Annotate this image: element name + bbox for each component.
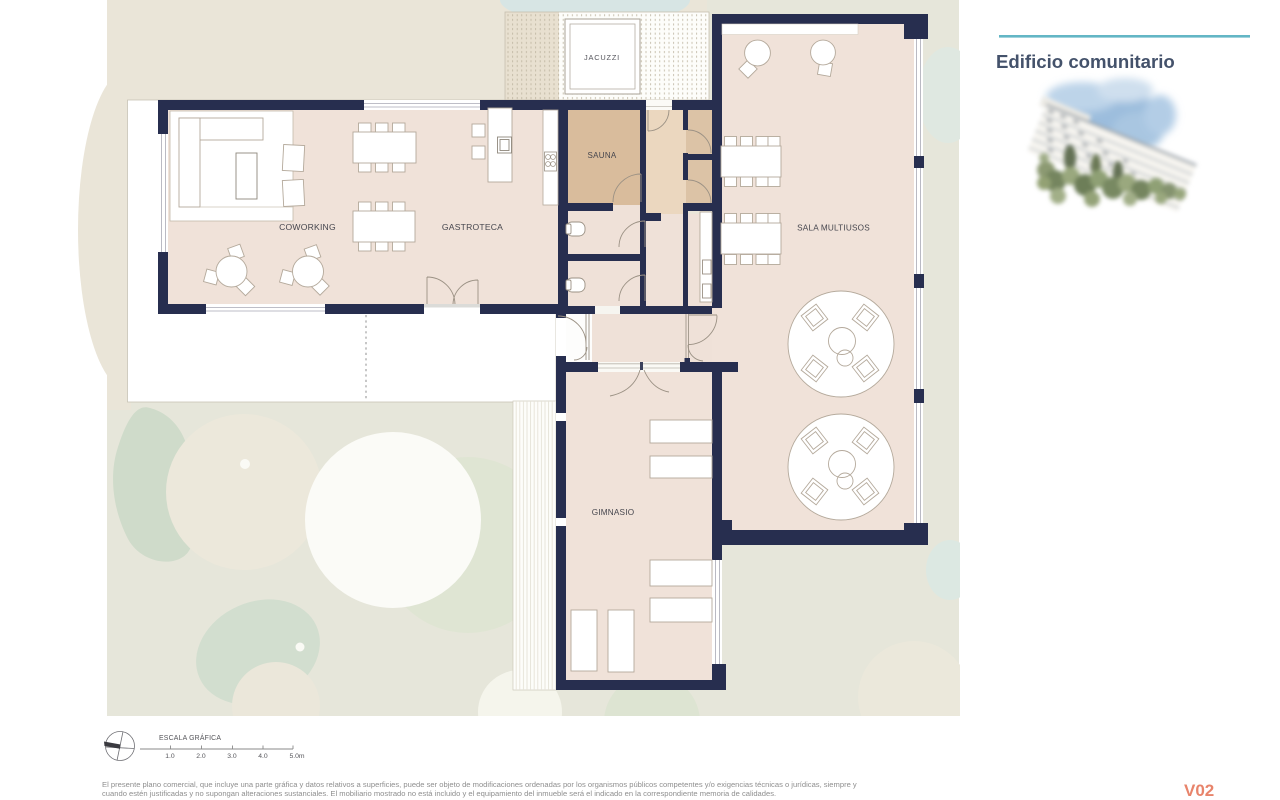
svg-text:4.0: 4.0	[258, 753, 268, 760]
svg-text:COWORKING: COWORKING	[279, 222, 336, 232]
svg-text:2.0: 2.0	[196, 753, 206, 760]
svg-text:5.0m: 5.0m	[289, 753, 304, 760]
svg-text:El presente plano comercial, q: El presente plano comercial, que incluye…	[102, 780, 857, 789]
svg-text:JACUZZI: JACUZZI	[584, 53, 620, 62]
svg-text:Edificio comunitario: Edificio comunitario	[996, 51, 1175, 72]
svg-text:GIMNASIO: GIMNASIO	[592, 508, 635, 517]
svg-text:V02: V02	[1184, 781, 1214, 800]
svg-text:3.0: 3.0	[227, 753, 237, 760]
svg-text:SALA MULTIUSOS: SALA MULTIUSOS	[797, 224, 870, 233]
svg-text:cuando estén justificadas y no: cuando estén justificadas y no supongan …	[102, 789, 776, 798]
svg-text:SAUNA: SAUNA	[587, 151, 616, 160]
svg-text:ESCALA GRÁFICA: ESCALA GRÁFICA	[159, 733, 221, 742]
svg-text:1.0: 1.0	[165, 753, 175, 760]
svg-text:GASTROTECA: GASTROTECA	[442, 222, 503, 232]
